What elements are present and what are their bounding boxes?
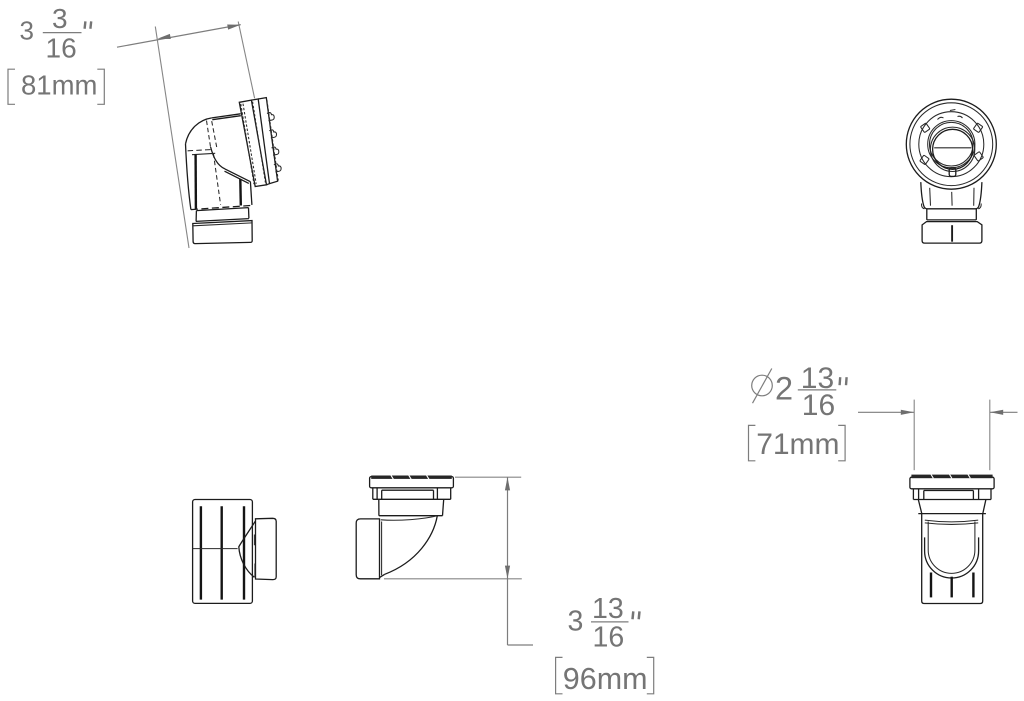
svg-text:16: 16 [593, 621, 625, 653]
svg-text:2: 2 [775, 371, 793, 407]
svg-text:3: 3 [20, 16, 34, 46]
svg-text:3: 3 [568, 606, 584, 638]
svg-text:71mm: 71mm [756, 428, 839, 461]
svg-text:96mm: 96mm [563, 662, 648, 696]
svg-text:16: 16 [46, 32, 77, 63]
svg-text:3: 3 [52, 3, 68, 34]
svg-text:81mm: 81mm [21, 70, 97, 101]
svg-text:13: 13 [592, 593, 624, 625]
svg-text:16: 16 [802, 389, 835, 422]
